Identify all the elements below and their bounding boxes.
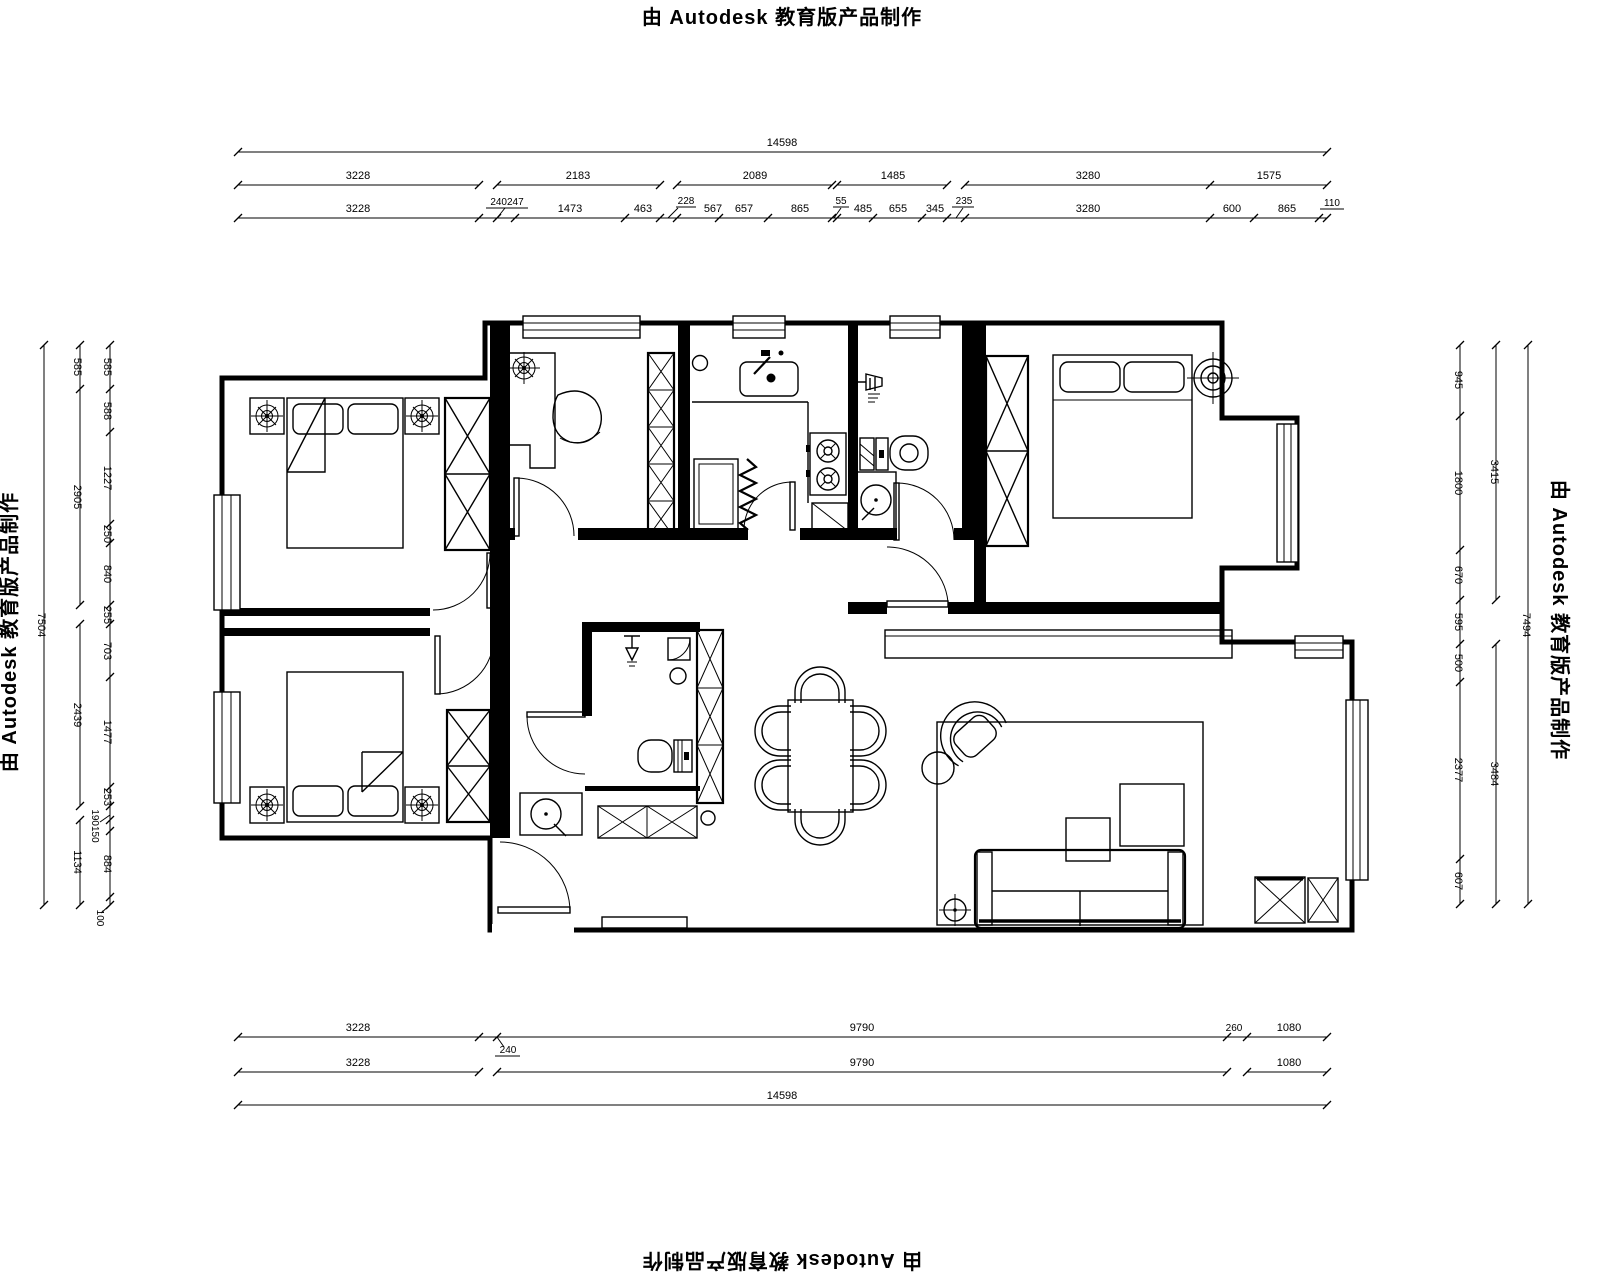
dim-label: 703: [101, 642, 113, 660]
dim-label: 3228: [346, 170, 370, 182]
bathroom-guest: [520, 630, 723, 838]
dim-label: 55: [835, 196, 847, 207]
dimensions-left: 7504 585 2905 2439 1134 585 588 1227 250…: [35, 341, 114, 927]
fridge: [694, 459, 738, 529]
dim-label: 1134: [71, 850, 83, 874]
wall-master-bottom: [948, 602, 1222, 614]
wall-bed1-bottom: [222, 608, 430, 616]
dim-label: 607: [1452, 872, 1464, 890]
dim-label: 253: [101, 788, 113, 806]
dim-label: 190150: [89, 809, 100, 843]
dim-label: 9790: [850, 1022, 874, 1034]
dim-label: 1080: [1277, 1057, 1301, 1069]
corner-shelf: [668, 638, 690, 660]
sink: [740, 350, 798, 396]
armchair: [927, 688, 1011, 770]
dim-label: 945: [1452, 371, 1464, 389]
wall-bedrooms-right: [490, 323, 510, 838]
dim-label: 2377: [1452, 758, 1464, 782]
desk: [508, 353, 555, 468]
corner-cabinet: [1255, 877, 1338, 923]
window-bathroom: [890, 316, 940, 338]
chair: [795, 809, 845, 845]
wall-bed2-top: [222, 628, 430, 636]
dim-label: 485: [854, 203, 872, 215]
dim-label: 840: [101, 565, 113, 583]
dim-label: 7494: [1520, 613, 1532, 637]
side-table: [922, 752, 954, 784]
dim-label: 600: [1223, 203, 1241, 215]
edu-stamp-right: 由 Autodesk 教育版产品制作: [1548, 480, 1572, 760]
dim-label: 3228: [346, 1022, 370, 1034]
dim-label: 250: [101, 525, 113, 543]
dim-label: 3484: [1488, 762, 1500, 786]
window-living-top: [1295, 636, 1343, 658]
edu-stamp-top: 由 Autodesk 教育版产品制作: [642, 5, 922, 29]
dim-label: 655: [889, 203, 907, 215]
floor-plan-drawing: 14598 3228 2183 2089 1485 3280 1575 3228…: [0, 0, 1600, 1280]
door-bedroom2: [435, 636, 494, 694]
dim-label: 240247: [490, 197, 524, 208]
dim-label: 463: [634, 203, 652, 215]
window-study: [523, 316, 640, 338]
plant-icon: [406, 789, 438, 821]
small-circle: [693, 356, 708, 371]
chair: [755, 706, 791, 756]
dim-label: 260: [1226, 1023, 1243, 1034]
toilet: [638, 740, 692, 772]
dim-label: 3415: [1488, 460, 1500, 484]
dim-label: 884: [101, 855, 113, 873]
window-kitchen: [733, 316, 785, 338]
desk-chair: [553, 391, 601, 443]
double-bed: [1053, 355, 1192, 518]
plant-icon: [406, 400, 438, 432]
dim-label: 2089: [743, 170, 767, 182]
ceiling-lamp-icon: [1187, 352, 1239, 404]
folding-door: [740, 459, 756, 530]
door-bathroom: [894, 483, 954, 540]
plant-icon: [508, 352, 540, 384]
bedroom-2: [250, 636, 494, 823]
tv-cabinet: [885, 630, 1232, 658]
door-kitchen: [744, 482, 795, 530]
wall-study-kitchen: [678, 323, 690, 540]
dim-label: 657: [735, 203, 753, 215]
washing-machine: [520, 793, 582, 836]
floor-lamp-icon: [939, 894, 971, 926]
dining-table: [788, 700, 853, 812]
plant-icon: [251, 400, 283, 432]
dim-label: 14598: [767, 137, 798, 149]
small-circle: [701, 811, 715, 825]
shower-icon: [858, 374, 882, 402]
dim-label: 1575: [1257, 170, 1281, 182]
dim-label: 585: [71, 358, 83, 376]
threshold: [602, 917, 687, 928]
dim-label: 100: [94, 910, 105, 927]
door-bathroom2: [527, 712, 585, 774]
base-cabinet: [812, 503, 848, 531]
double-bed: [287, 398, 403, 548]
chair: [795, 667, 845, 703]
wall-vestibule-right: [974, 540, 986, 608]
study: [508, 352, 674, 537]
dim-label: 14598: [767, 1090, 798, 1102]
tall-cabinet: [648, 353, 674, 537]
cad-sheet: 14598 3228 2183 2089 1485 3280 1575 3228…: [0, 0, 1600, 1280]
dim-label: 9790: [850, 1057, 874, 1069]
dim-label: 1477: [101, 720, 113, 744]
walls: [222, 323, 1352, 930]
cabinet-column: [697, 630, 723, 803]
dim-label: 2905: [71, 485, 83, 509]
coffee-table-large: [1120, 784, 1184, 846]
dim-label: 670: [1452, 566, 1464, 584]
bathroom-main: [856, 374, 954, 540]
dimensions-top: 14598 3228 2183 2089 1485 3280 1575 3228…: [234, 137, 1344, 222]
window-living-right: [1346, 700, 1368, 880]
exterior-wall: [222, 323, 1352, 930]
dim-label: 1485: [881, 170, 905, 182]
dim-label: 1473: [558, 203, 582, 215]
bedroom-1: [250, 398, 492, 610]
door-bedroom1: [433, 553, 492, 610]
dim-label: 255: [101, 606, 113, 624]
dim-label: 500: [1452, 654, 1464, 672]
dim-label: 7504: [35, 613, 47, 637]
dining-area: [755, 667, 886, 845]
shower-icon: [624, 636, 640, 666]
dim-label: 567: [704, 203, 722, 215]
dim-label: 228: [678, 196, 695, 207]
windows: [214, 316, 1368, 880]
dim-label: 240: [500, 1045, 517, 1056]
edu-stamp-bottom: 由 Autodesk 教育版产品制作: [642, 1249, 922, 1273]
dimensions-bottom: 3228 240 9790 260 1080 3228 9790 1080 14…: [234, 1022, 1331, 1109]
dim-label: 865: [791, 203, 809, 215]
dim-label: 3228: [346, 1057, 370, 1069]
dim-label: 2183: [566, 170, 590, 182]
dimensions-right: 945 1800 670 595 500 2377 607 3415 3484 …: [1452, 341, 1532, 908]
window-bedroom2: [214, 692, 240, 803]
cabinet-bottom: [598, 806, 697, 838]
dim-label: 3280: [1076, 170, 1100, 182]
plant-icon: [251, 789, 283, 821]
door-study: [514, 478, 574, 536]
wardrobe: [986, 356, 1028, 546]
dim-label: 588: [101, 402, 113, 420]
dim-label: 1800: [1452, 471, 1464, 495]
dim-label: 585: [101, 358, 113, 376]
dim-label: 3280: [1076, 203, 1100, 215]
dim-label: 235: [956, 196, 973, 207]
chair: [755, 760, 791, 810]
wardrobe: [447, 710, 490, 822]
dim-label: 2439: [71, 703, 83, 727]
dim-label: 110: [1324, 198, 1340, 209]
living-room: [922, 688, 1338, 928]
dim-label: 595: [1452, 613, 1464, 631]
entry-door-swing: [500, 842, 570, 912]
chair: [850, 706, 886, 756]
double-bed: [287, 672, 403, 822]
basin: [670, 668, 686, 684]
wardrobe: [445, 398, 490, 550]
wall-bath2-left: [582, 622, 592, 716]
door-master: [887, 547, 948, 607]
dim-label: 345: [926, 203, 944, 215]
dim-label: 1227: [101, 466, 113, 490]
window-bedroom1: [214, 495, 240, 610]
coffee-table-small: [1066, 818, 1110, 861]
stove: [806, 433, 846, 495]
dim-label: 1080: [1277, 1022, 1301, 1034]
dim-label: 3228: [346, 203, 370, 215]
window-bay-master: [1277, 424, 1298, 562]
chair: [850, 760, 886, 810]
sofa: [975, 850, 1185, 928]
kitchen: [692, 350, 848, 531]
entry: [492, 842, 687, 935]
edu-stamp-left: 由 Autodesk 教育版产品制作: [0, 492, 21, 772]
dim-label: 865: [1278, 203, 1296, 215]
wall-bath2-top: [582, 622, 700, 632]
washbasin: [856, 472, 896, 532]
toilet: [860, 436, 928, 470]
entry-door-leaf: [498, 907, 570, 913]
wall-bath-master: [962, 323, 986, 540]
